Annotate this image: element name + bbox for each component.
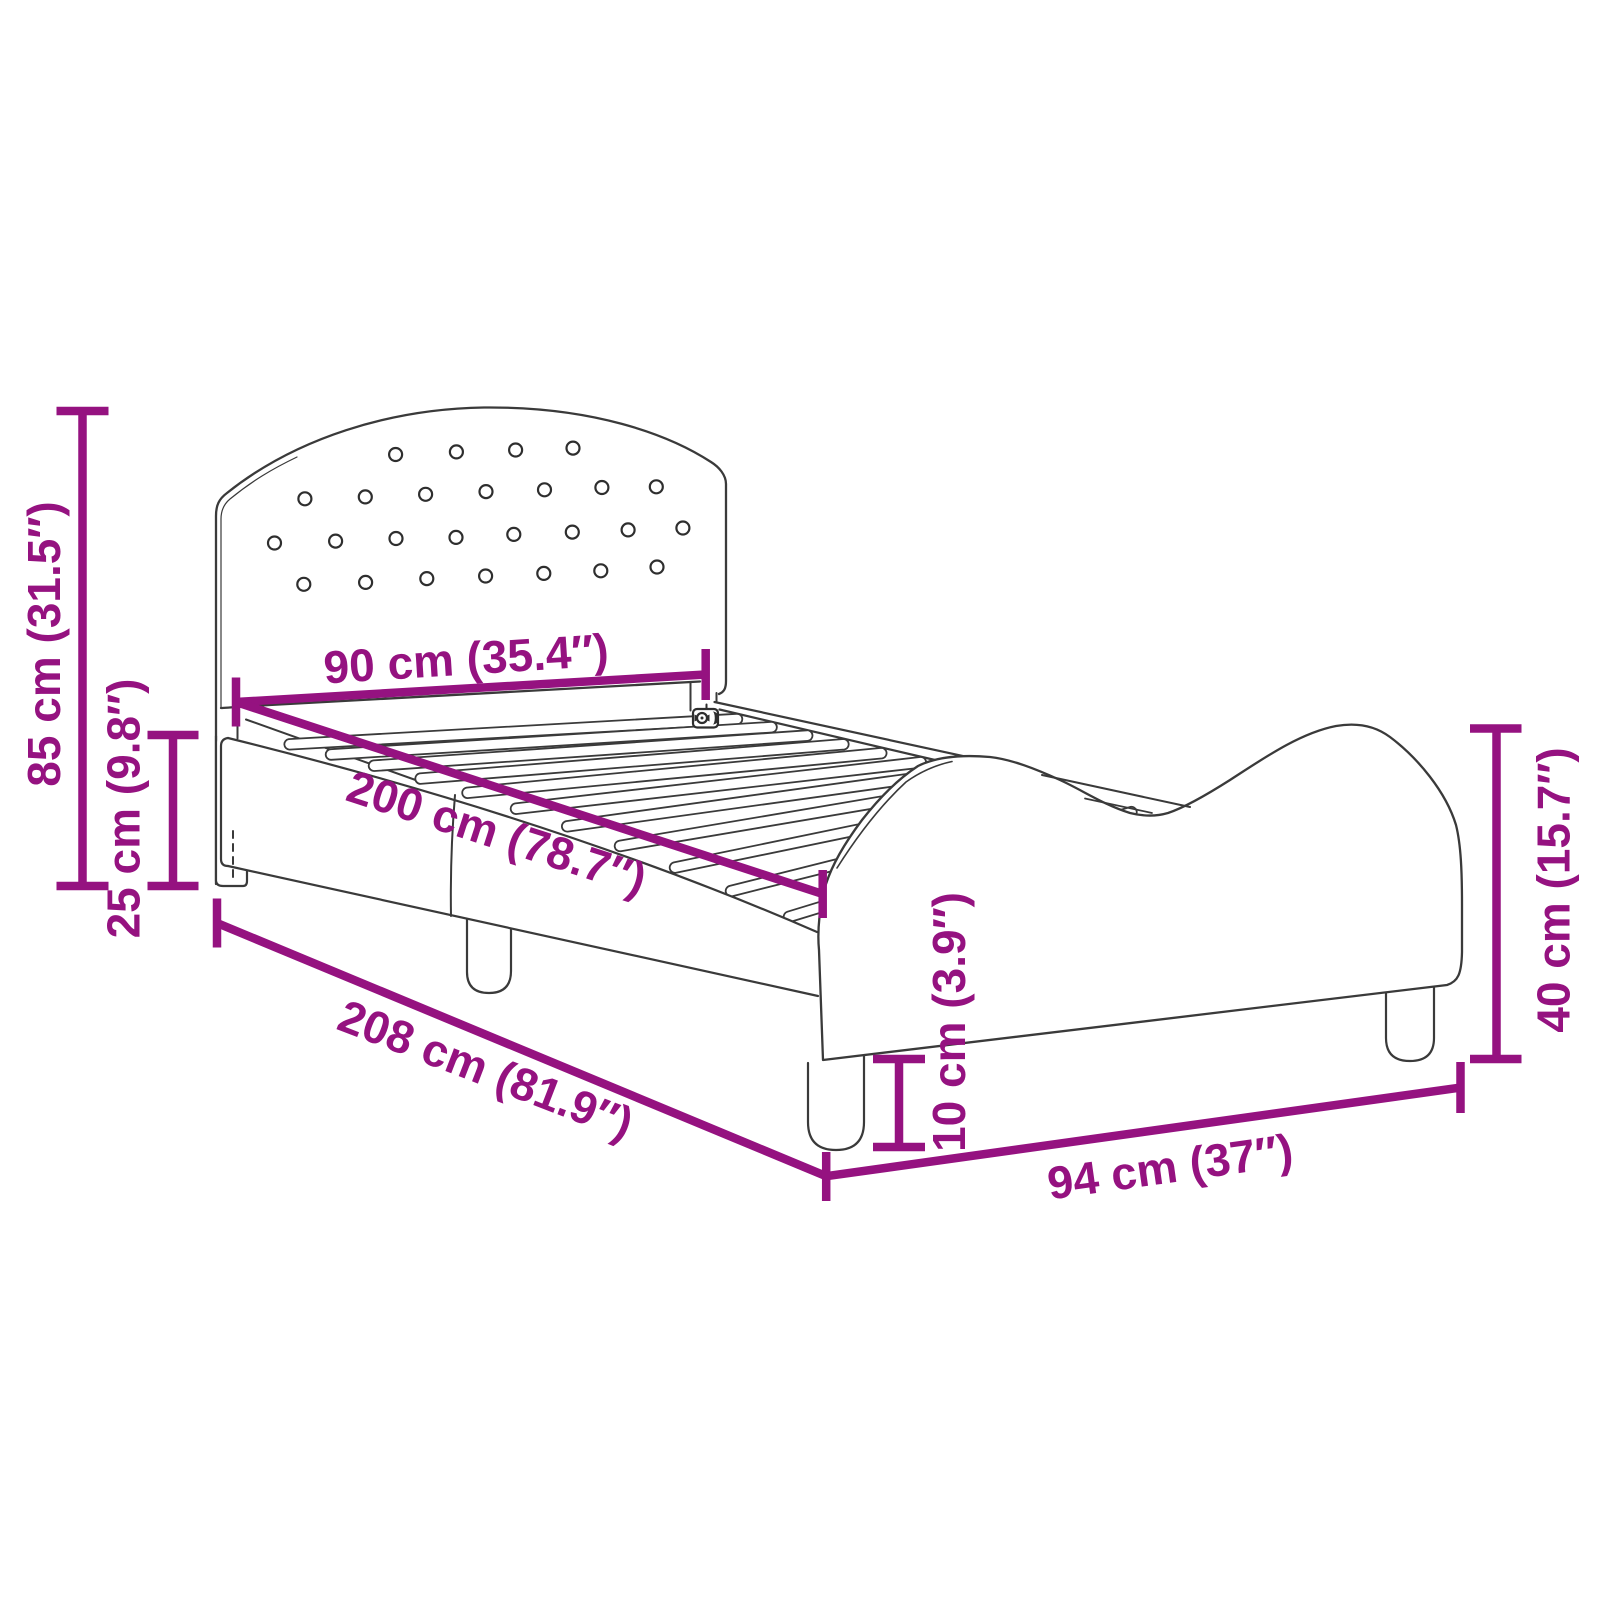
svg-text:25 cm (9.8″): 25 cm (9.8″)	[98, 679, 150, 939]
svg-text:208 cm (81.9″): 208 cm (81.9″)	[331, 989, 640, 1149]
svg-text:85 cm (31.5″): 85 cm (31.5″)	[18, 501, 70, 786]
svg-text:40 cm (15.7″): 40 cm (15.7″)	[1528, 747, 1580, 1032]
svg-text:10 cm (3.9″): 10 cm (3.9″)	[923, 892, 975, 1152]
